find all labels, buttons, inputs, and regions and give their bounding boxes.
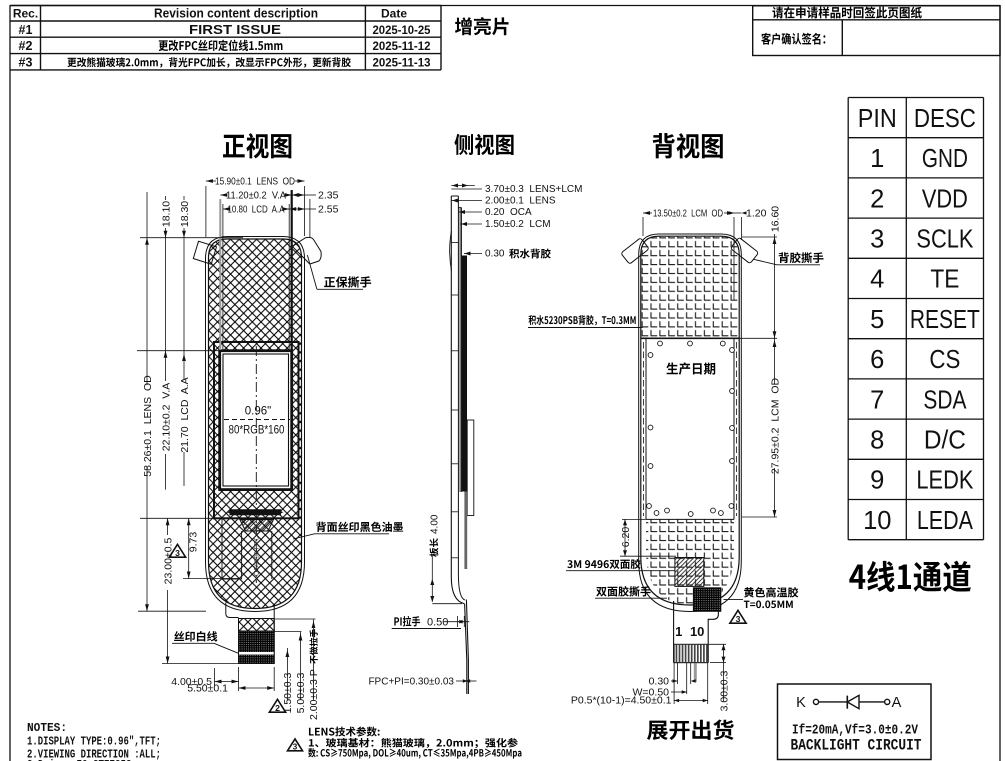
svg-text:CS: CS [929,346,960,374]
svg-text:#1: #1 [19,23,33,37]
svg-text:3: 3 [175,548,180,558]
svg-text:Date: Date [381,7,407,21]
svg-text:6: 6 [870,346,884,374]
svg-text:3: 3 [870,226,884,254]
svg-text:FPC+PI=0.30±0.03: FPC+PI=0.30±0.03 [368,677,454,688]
svg-text:8: 8 [870,427,884,455]
svg-text:27.95±0.2 LCM OD: 27.95±0.2 LCM OD [770,377,782,474]
svg-text:23.00±0.5: 23.00±0.5 [163,538,175,585]
svg-text:11.20±0.2 V.A: 11.20±0.2 V.A [226,190,286,202]
svg-text:#2: #2 [19,39,33,53]
svg-text:K: K [796,695,806,711]
svg-text:SDA: SDA [923,386,966,414]
svg-text:9: 9 [870,467,884,495]
svg-text:1.50±0.3: 1.50±0.3 [282,672,294,713]
svg-text:3.00±0.3: 3.00±0.3 [719,670,731,711]
svg-text:RESET: RESET [910,306,980,334]
svg-text:2.55: 2.55 [318,204,339,216]
svg-text:A: A [892,695,902,711]
svg-text:DESC: DESC [914,105,976,133]
svg-text:58.26±0.1 LENS OD: 58.26±0.1 LENS OD [142,375,154,477]
svg-text:Revision content description: Revision content description [154,7,318,21]
svg-text:18.30: 18.30 [179,201,191,227]
svg-text:SCLK: SCLK [916,226,973,254]
svg-text:P0.5*(10-1)=4.50±0.1: P0.5*(10-1)=4.50±0.1 [571,695,672,707]
svg-text:1.DISPLAY TYPE:0.96",TFT;: 1.DISPLAY TYPE:0.96",TFT; [27,736,161,749]
svg-text:21.70 LCD A.A: 21.70 LCD A.A [179,377,191,452]
svg-text:NOTES:: NOTES: [27,722,67,735]
svg-text:4: 4 [870,266,884,294]
svg-text:BACKLIGHT CIRCUIT: BACKLIGHT CIRCUIT [791,737,922,755]
svg-text:80*RGB*160: 80*RGB*160 [229,425,285,437]
svg-text:1.50±0.2 LCM: 1.50±0.2 LCM [485,219,551,230]
svg-text:18.10: 18.10 [161,201,173,227]
svg-text:16.60: 16.60 [770,206,782,232]
svg-text:10.80 LCD A.A: 10.80 LCD A.A [228,204,285,216]
svg-text:5: 5 [870,306,884,334]
svg-text:1: 1 [675,624,682,639]
svg-text:3: 3 [736,614,741,624]
svg-text:LEDK: LEDK [916,467,973,495]
svg-text:3.70±0.3 LENS+LCM: 3.70±0.3 LENS+LCM [485,184,583,195]
svg-text:15.90±0.1 LENS OD: 15.90±0.1 LENS OD [215,176,295,188]
svg-text:4.00: 4.00 [430,514,441,534]
svg-text:0.20 OCA: 0.20 OCA [485,207,532,218]
svg-text:2025-11-12: 2025-11-12 [373,39,431,53]
svg-text:LEDA: LEDA [917,507,973,535]
svg-text:2.35: 2.35 [318,190,339,202]
svg-text:2: 2 [275,703,280,713]
svg-text:5.00±0.3: 5.00±0.3 [295,672,307,713]
svg-text:0.50: 0.50 [427,617,448,629]
svg-text:2025-10-25: 2025-10-25 [373,23,431,37]
svg-text:10: 10 [863,507,891,535]
svg-text:TE: TE [930,266,959,294]
svg-text:2025-11-13: 2025-11-13 [373,55,431,69]
svg-text:1: 1 [870,145,884,173]
svg-text:2.00±0.3 P: 2.00±0.3 P [308,669,320,720]
svg-text:D/C: D/C [924,427,966,455]
svg-text:2: 2 [870,185,884,213]
svg-text:22.10±0.2 V.A: 22.10±0.2 V.A [161,383,173,451]
svg-text:PIN: PIN [858,105,897,133]
svg-text:2.00±0.1 LENS: 2.00±0.1 LENS [485,196,556,207]
svg-text:7: 7 [870,386,884,414]
svg-text:GND: GND [922,145,968,173]
svg-text:5.50±0.1: 5.50±0.1 [187,683,228,695]
svg-text:QG0096-FPC-A1: QG0096-FPC-A1 [254,526,261,576]
svg-text:VDD: VDD [922,185,968,213]
svg-text:Rec.: Rec. [13,7,38,21]
svg-text:1.20: 1.20 [746,208,767,220]
svg-text:#3: #3 [19,55,33,69]
svg-text:0.96": 0.96" [245,406,271,418]
svg-text:FIRST ISSUE: FIRST ISSUE [189,23,281,37]
svg-text:0.30: 0.30 [485,249,505,260]
svg-text:10: 10 [690,624,704,639]
svg-text:6.20: 6.20 [620,527,632,548]
svg-text:13.50±0.2 LCM OD: 13.50±0.2 LCM OD [653,208,723,220]
svg-text:3: 3 [293,743,298,752]
svg-text:9.73: 9.73 [188,532,200,553]
